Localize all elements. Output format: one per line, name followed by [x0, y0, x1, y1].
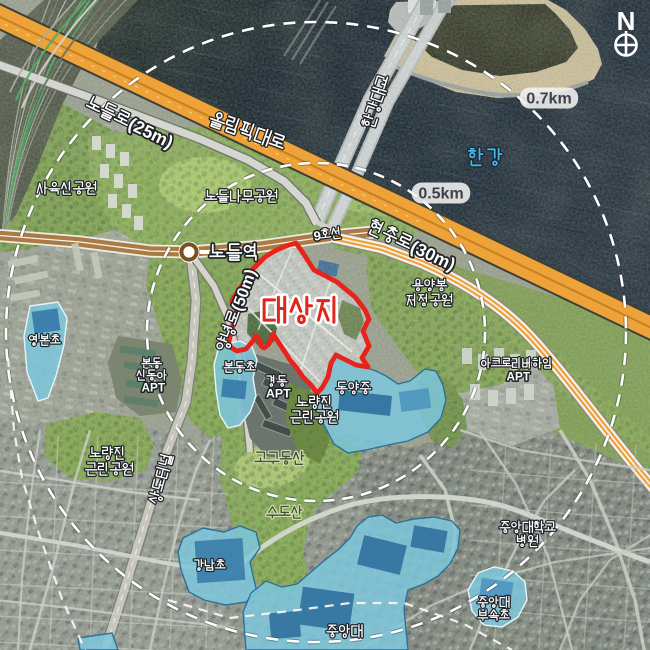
svg-text:APT: APT — [507, 371, 531, 384]
svg-text:0.5km: 0.5km — [418, 186, 463, 203]
svg-text:APT: APT — [266, 387, 291, 401]
svg-text:APT: APT — [142, 382, 166, 395]
svg-text:0.7km: 0.7km — [526, 91, 571, 108]
